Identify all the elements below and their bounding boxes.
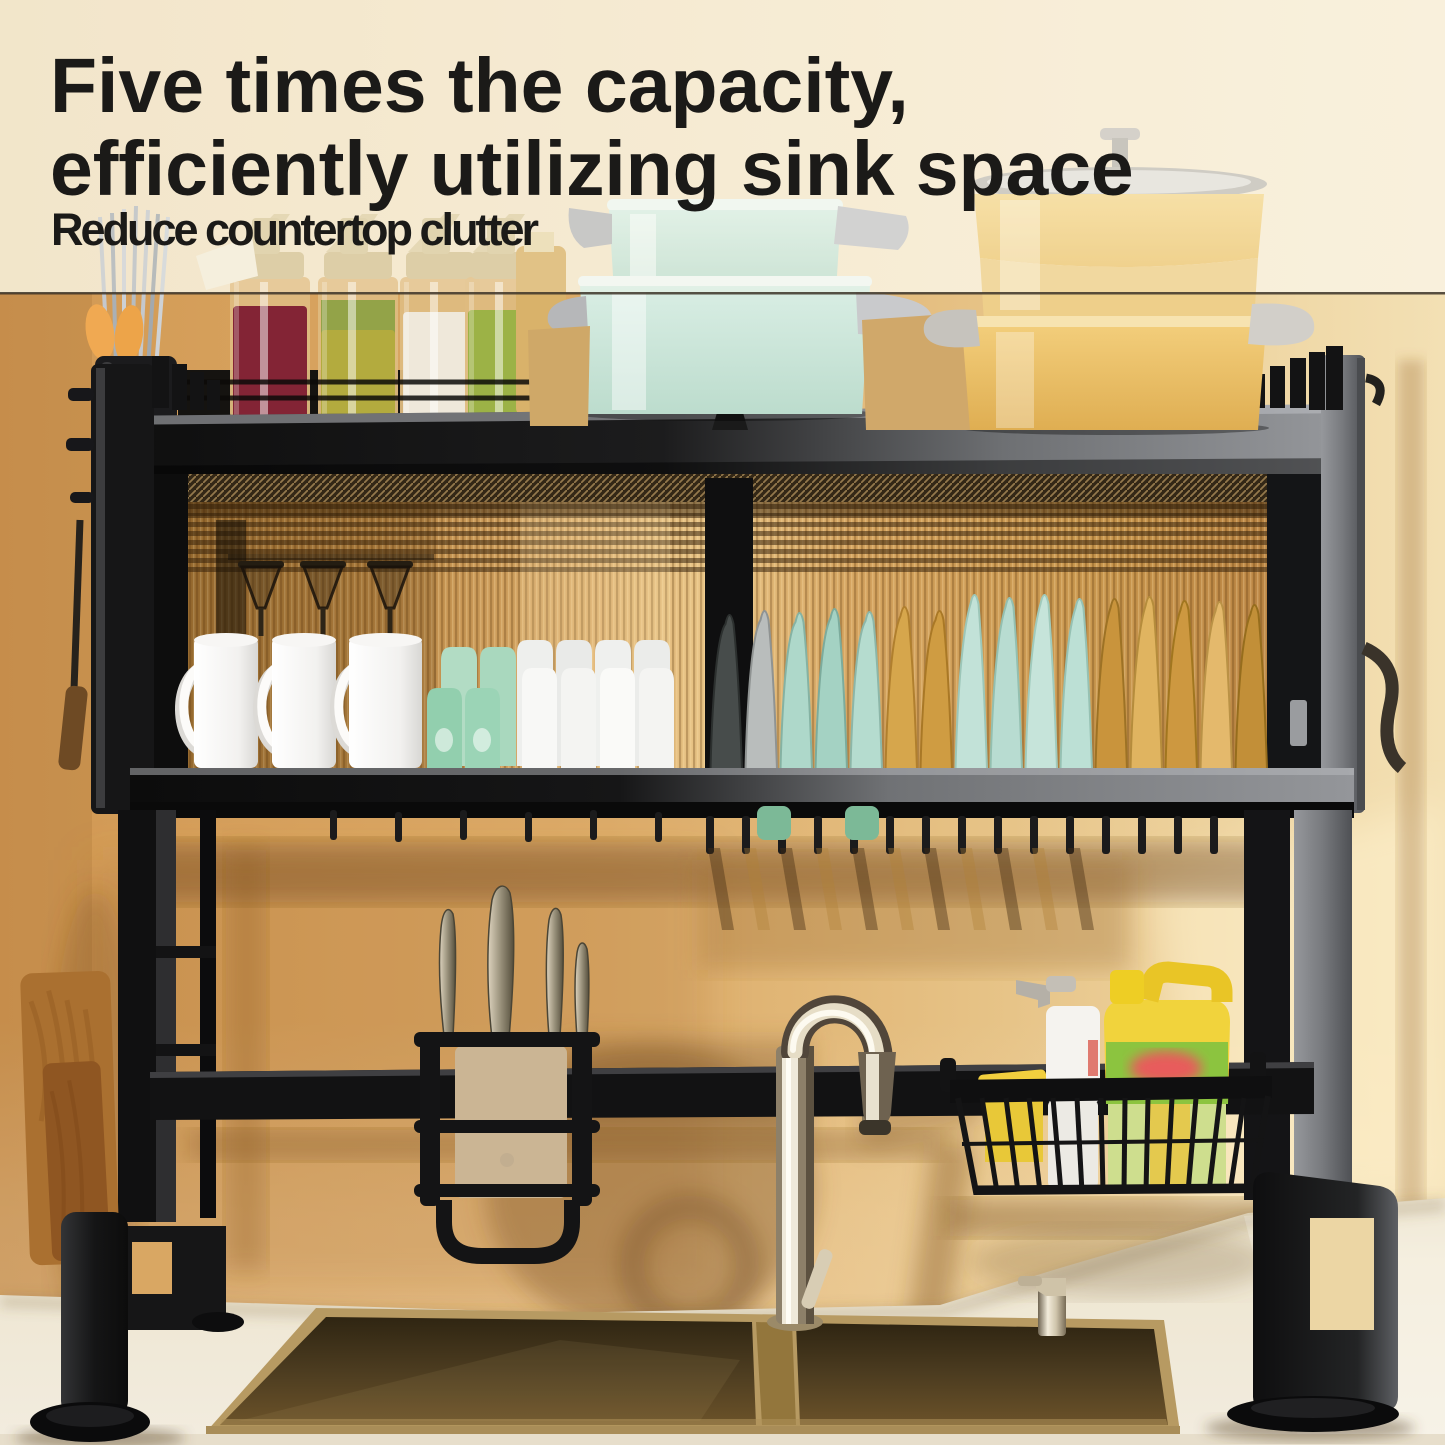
svg-text:Five times the capacity,: Five times the capacity, [50,43,909,129]
svg-text:Reduce countertop clutter: Reduce countertop clutter [51,204,539,255]
svg-text:efficiently utilizing sink spa: efficiently utilizing sink space [50,126,1134,212]
